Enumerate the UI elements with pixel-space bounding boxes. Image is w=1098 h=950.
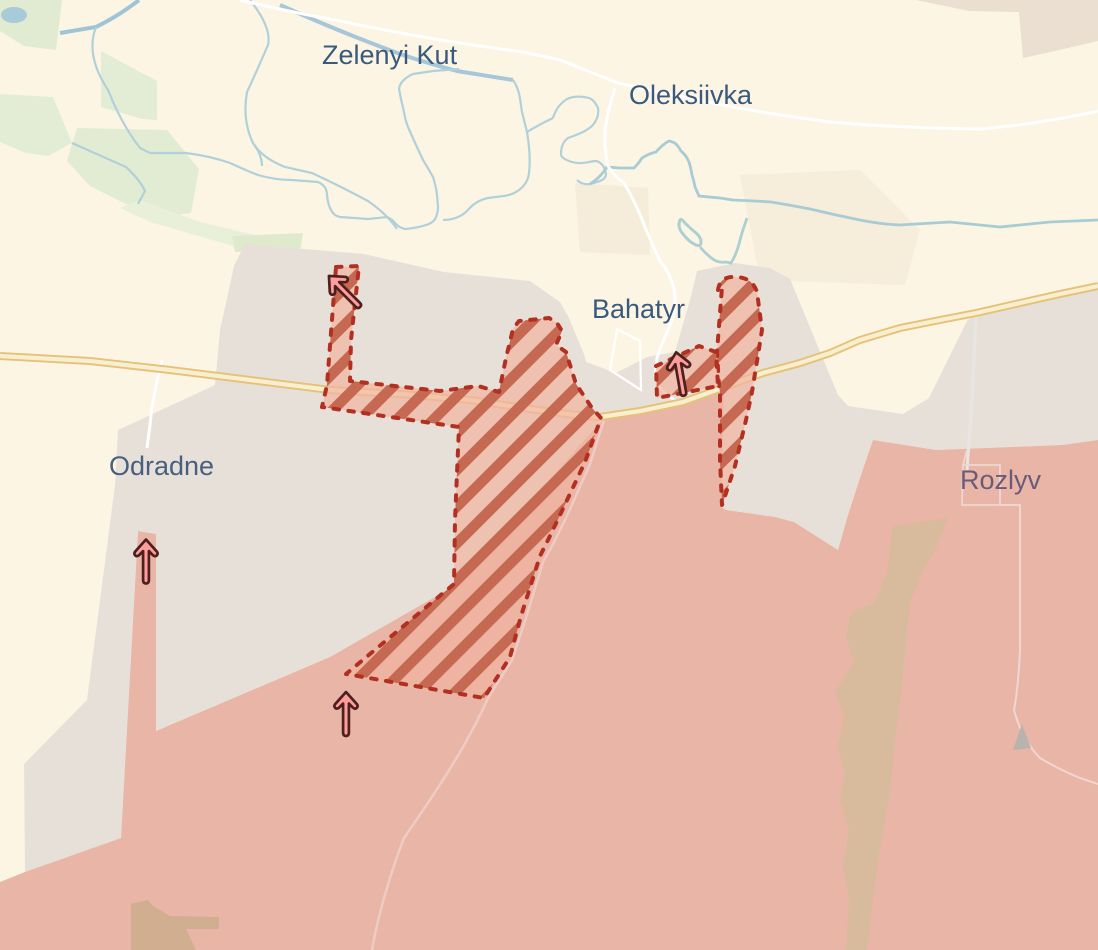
- svg-text:Odradne: Odradne: [109, 451, 214, 481]
- svg-text:Rozlyv: Rozlyv: [960, 465, 1042, 495]
- svg-text:Oleksiivka: Oleksiivka: [629, 80, 753, 110]
- svg-text:Bahatyr: Bahatyr: [592, 294, 685, 324]
- svg-text:Zelenyi Kut: Zelenyi Kut: [322, 40, 458, 70]
